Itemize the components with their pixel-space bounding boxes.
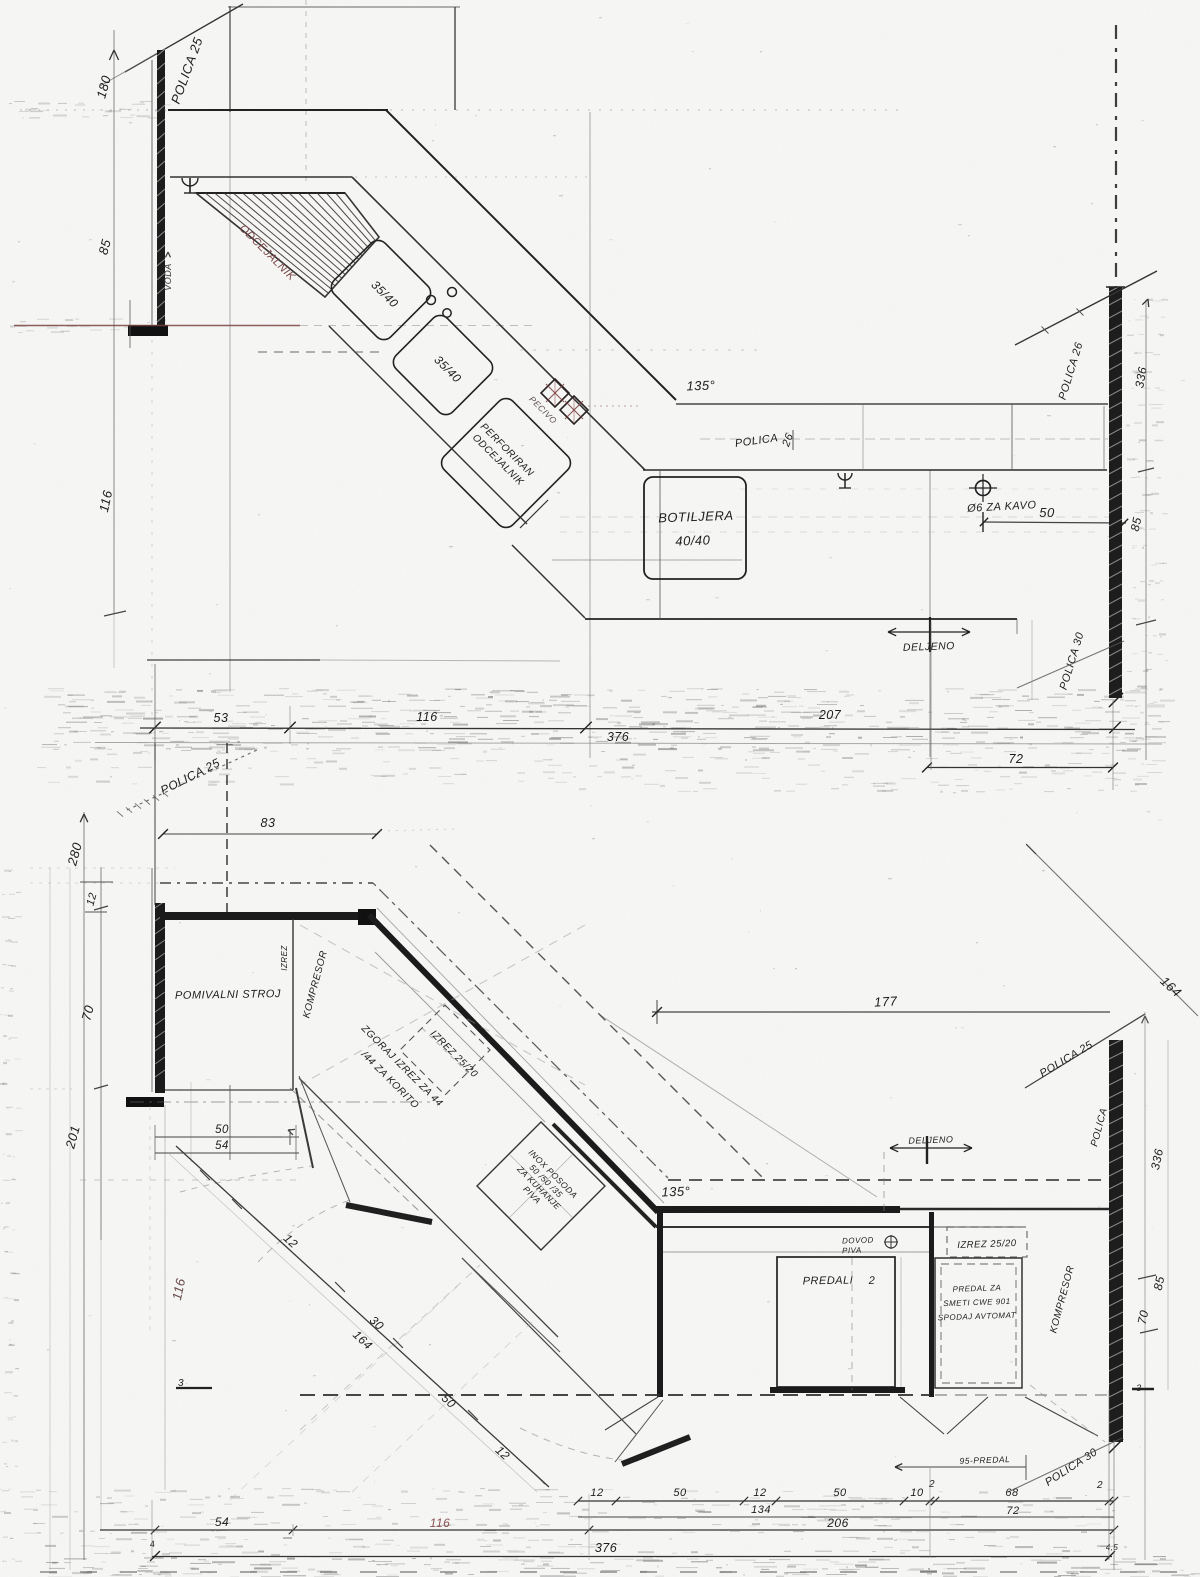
svg-text:54: 54 <box>215 1515 229 1529</box>
svg-text:DELJENO: DELJENO <box>908 1134 953 1146</box>
svg-text:54: 54 <box>215 1140 229 1152</box>
svg-text:376: 376 <box>607 730 629 744</box>
svg-text:206: 206 <box>826 1516 849 1530</box>
svg-text:70: 70 <box>1135 1309 1152 1326</box>
svg-text:72: 72 <box>1009 752 1024 766</box>
svg-text:116: 116 <box>430 1516 451 1530</box>
svg-text:2: 2 <box>1096 1480 1103 1491</box>
svg-text:85: 85 <box>1128 516 1145 533</box>
svg-text:207: 207 <box>818 708 842 722</box>
svg-text:40/40: 40/40 <box>675 532 711 548</box>
svg-text:134: 134 <box>751 1504 771 1516</box>
svg-text:135°: 135° <box>661 1184 690 1200</box>
svg-text:BOTILJERA: BOTILJERA <box>658 508 734 526</box>
svg-text:135°: 135° <box>686 378 715 394</box>
svg-text:PREDAL ZA: PREDAL ZA <box>952 1283 1001 1294</box>
svg-text:53: 53 <box>214 711 229 725</box>
svg-text:50: 50 <box>673 1487 687 1499</box>
svg-text:72: 72 <box>1006 1505 1019 1517</box>
svg-text:DELJENO: DELJENO <box>903 640 955 654</box>
svg-text:VODA: VODA <box>163 263 173 291</box>
svg-text:116: 116 <box>416 710 437 724</box>
svg-text:95-PREDAL: 95-PREDAL <box>959 1454 1010 1466</box>
svg-text:IZREZ 25/20: IZREZ 25/20 <box>957 1238 1017 1251</box>
svg-text:85: 85 <box>1151 1275 1168 1292</box>
svg-text:50: 50 <box>833 1487 847 1499</box>
svg-text:DOVOD: DOVOD <box>842 1235 874 1245</box>
svg-text:IZREZ: IZREZ <box>280 945 289 971</box>
svg-text:50: 50 <box>1039 505 1055 520</box>
svg-text:68: 68 <box>1005 1487 1019 1499</box>
svg-text:4,5: 4,5 <box>1106 1543 1119 1552</box>
svg-text:376: 376 <box>595 1541 617 1555</box>
svg-text:12: 12 <box>590 1487 603 1499</box>
svg-text:2: 2 <box>928 1479 935 1490</box>
svg-text:10: 10 <box>910 1487 924 1499</box>
svg-text:POMIVALNI STROJ: POMIVALNI STROJ <box>175 988 281 1002</box>
svg-text:12: 12 <box>753 1487 766 1499</box>
svg-text:PIVA: PIVA <box>842 1246 862 1256</box>
svg-text:83: 83 <box>261 816 276 830</box>
svg-text:PREDALI: PREDALI <box>803 1275 854 1288</box>
svg-text:2: 2 <box>868 1275 876 1287</box>
svg-text:177: 177 <box>874 993 898 1009</box>
svg-text:50: 50 <box>215 1124 229 1136</box>
